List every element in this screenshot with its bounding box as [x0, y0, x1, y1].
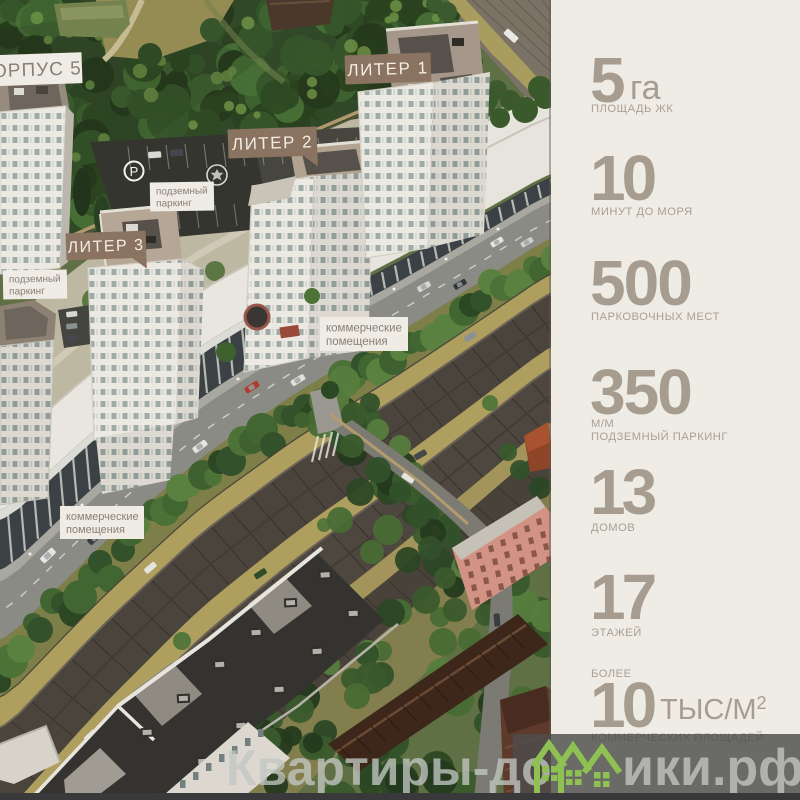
svg-text:ТЫС/М2: ТЫС/М2	[660, 693, 767, 726]
svg-text:10: 10	[590, 669, 655, 741]
svg-text:ЛИТЕР 3: ЛИТЕР 3	[67, 237, 145, 257]
svg-text:подземный: подземный	[156, 186, 208, 198]
svg-text:17: 17	[590, 561, 655, 633]
svg-text:паркинг: паркинг	[156, 198, 192, 210]
svg-text:паркинг: паркинг	[9, 286, 45, 298]
svg-text:ОРПУС 5: ОРПУС 5	[0, 58, 82, 82]
svg-text:ЛИТЕР 1: ЛИТЕР 1	[347, 58, 429, 80]
svg-text:га: га	[630, 69, 661, 107]
svg-text:М/М: М/М	[591, 418, 614, 430]
svg-text:13: 13	[590, 456, 656, 528]
svg-text:ЭТАЖЕЙ: ЭТАЖЕЙ	[591, 626, 642, 639]
svg-text:помещения: помещения	[326, 336, 388, 348]
svg-text:Квартиры-до: Квартиры-до	[226, 740, 552, 796]
svg-text:ики.рф: ики.рф	[622, 739, 800, 797]
svg-text:ПАРКОВОЧНЫХ МЕСТ: ПАРКОВОЧНЫХ МЕСТ	[591, 311, 720, 323]
svg-text:500: 500	[590, 247, 691, 319]
svg-text:МИНУТ ДО МОРЯ: МИНУТ ДО МОРЯ	[591, 206, 693, 218]
svg-text:ЛИТЕР 2: ЛИТЕР 2	[232, 132, 314, 154]
svg-text:ДОМОВ: ДОМОВ	[591, 522, 635, 534]
svg-text:ПЛОЩАДЬ ЖК: ПЛОЩАДЬ ЖК	[591, 103, 673, 115]
svg-text:10: 10	[590, 142, 655, 214]
svg-text:коммерческие: коммерческие	[326, 322, 402, 334]
svg-text:ПОДЗЕМНЫЙ ПАРКИНГ: ПОДЗЕМНЫЙ ПАРКИНГ	[591, 430, 728, 443]
svg-text:помещения: помещения	[66, 524, 125, 536]
svg-text:P: P	[130, 164, 139, 179]
svg-text:коммерческие: коммерческие	[66, 511, 139, 523]
svg-text:подземный: подземный	[9, 274, 61, 286]
